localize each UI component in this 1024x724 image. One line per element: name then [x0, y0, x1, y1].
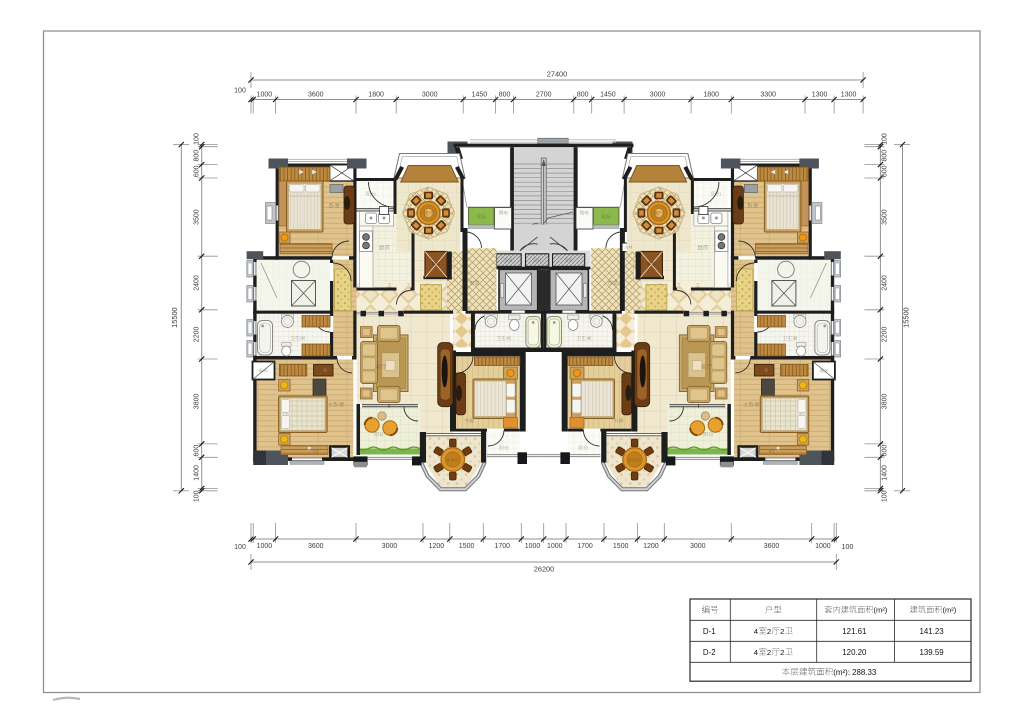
svg-text:2: 2 [780, 648, 784, 657]
svg-text:3000: 3000 [690, 543, 706, 550]
svg-text:600: 600 [194, 445, 201, 457]
svg-text:2200: 2200 [194, 327, 201, 343]
svg-text:1450: 1450 [600, 92, 616, 99]
svg-text:800: 800 [499, 92, 511, 99]
svg-text:1700: 1700 [495, 543, 511, 550]
svg-text:100: 100 [234, 88, 246, 95]
svg-text:4: 4 [754, 648, 759, 657]
svg-text:D-2: D-2 [703, 648, 716, 657]
svg-text:100: 100 [194, 133, 201, 145]
svg-text:26200: 26200 [534, 565, 555, 574]
svg-text:2700: 2700 [536, 92, 552, 99]
svg-text:141.23: 141.23 [920, 627, 945, 636]
svg-text:800: 800 [194, 150, 201, 162]
svg-text:D-1: D-1 [703, 627, 716, 636]
svg-text:3000: 3000 [422, 92, 438, 99]
svg-text:100: 100 [194, 490, 201, 502]
svg-text:1500: 1500 [613, 543, 629, 550]
svg-text:3000: 3000 [382, 543, 398, 550]
svg-text:3300: 3300 [760, 92, 776, 99]
svg-text:1000: 1000 [257, 543, 273, 550]
svg-text:600: 600 [882, 445, 889, 457]
svg-text:121.61: 121.61 [842, 627, 866, 636]
svg-text:4: 4 [754, 627, 759, 636]
svg-text:3600: 3600 [308, 92, 324, 99]
svg-text:139.59: 139.59 [920, 648, 945, 657]
svg-text:100: 100 [234, 544, 246, 551]
svg-text:1700: 1700 [577, 543, 593, 550]
svg-text:1300: 1300 [812, 92, 828, 99]
svg-text:100: 100 [842, 544, 854, 551]
svg-text:600: 600 [194, 165, 201, 177]
svg-text:1000: 1000 [547, 543, 563, 550]
svg-text:15500: 15500 [902, 307, 911, 328]
svg-text:3500: 3500 [194, 209, 201, 225]
svg-text:2: 2 [767, 648, 771, 657]
svg-text:1000: 1000 [815, 543, 831, 550]
svg-text:100: 100 [882, 490, 889, 502]
svg-text:1450: 1450 [472, 92, 488, 99]
svg-text:1000: 1000 [525, 543, 541, 550]
svg-text:120.20: 120.20 [842, 648, 867, 657]
svg-text:1200: 1200 [429, 543, 445, 550]
svg-text:2: 2 [780, 627, 784, 636]
svg-text:3000: 3000 [650, 92, 666, 99]
svg-text:1400: 1400 [194, 465, 201, 481]
svg-text:1800: 1800 [368, 92, 384, 99]
svg-text:1400: 1400 [882, 465, 889, 481]
svg-text:15500: 15500 [170, 307, 179, 328]
svg-text:3800: 3800 [882, 394, 889, 410]
svg-text:3600: 3600 [308, 543, 324, 550]
svg-text:2200: 2200 [882, 327, 889, 343]
svg-text:27400: 27400 [547, 70, 568, 79]
svg-text:2400: 2400 [194, 275, 201, 291]
svg-text:(m²): (m²) [943, 606, 957, 615]
svg-text:100: 100 [882, 133, 889, 145]
svg-text:2: 2 [767, 627, 771, 636]
svg-text:1500: 1500 [459, 543, 475, 550]
svg-text:1300: 1300 [841, 92, 857, 99]
svg-text:3600: 3600 [764, 543, 780, 550]
svg-text:(m²): 288.33: (m²): 288.33 [833, 668, 877, 677]
svg-text:3500: 3500 [882, 209, 889, 225]
svg-text:(m²): (m²) [874, 606, 888, 615]
svg-text:2400: 2400 [882, 275, 889, 291]
svg-text:1200: 1200 [643, 543, 659, 550]
svg-text:600: 600 [882, 165, 889, 177]
svg-text:800: 800 [577, 92, 589, 99]
svg-text:3800: 3800 [194, 394, 201, 410]
svg-text:1000: 1000 [257, 92, 273, 99]
svg-text:800: 800 [882, 150, 889, 162]
svg-text:1800: 1800 [703, 92, 719, 99]
